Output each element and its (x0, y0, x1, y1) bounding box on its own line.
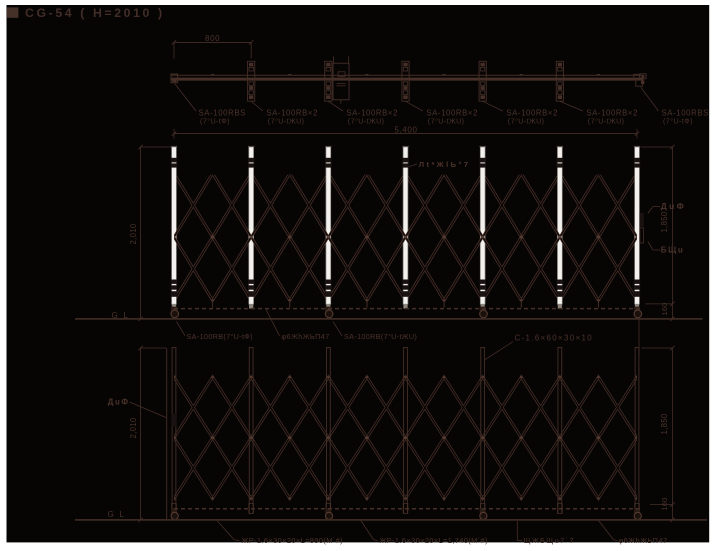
svg-text:160: 160 (660, 303, 669, 316)
svg-text:2,010: 2,010 (129, 223, 138, 244)
svg-text:CG-54 ( H=2010 ): CG-54 ( H=2010 ) (25, 6, 165, 20)
svg-text:(7°U-tЖU): (7°U-tЖU) (588, 116, 625, 125)
svg-text:G L: G L (112, 311, 130, 320)
svg-text:ЖP-1.6×30×20×L=1,740(М´#): ЖP-1.6×30×20×L=1,740(М´#) (380, 536, 488, 545)
svg-text:(7°U-tЖU): (7°U-tЖU) (428, 116, 465, 125)
svg-text:φ6ЖhЖЬП47: φ6ЖhЖЬП47 (619, 536, 668, 545)
svg-text:800: 800 (205, 34, 220, 43)
svg-text:160: 160 (660, 498, 669, 511)
svg-text:(7°U-tЖU): (7°U-tЖU) (268, 116, 305, 125)
svg-text:ЩЖБЩu7´7: ЩЖБЩu7´7 (524, 536, 576, 545)
svg-text:2,010: 2,010 (129, 417, 138, 438)
svg-text:Лt*ЖlЬ°7: Лt*ЖlЬ°7 (419, 160, 471, 169)
svg-text:G L: G L (108, 510, 126, 519)
svg-text:(7°U-tЖU): (7°U-tЖU) (508, 116, 545, 125)
svg-text:SA-100RB(7°U-tЖU): SA-100RB(7°U-tЖU) (344, 332, 417, 341)
svg-text:SA-100RB(7°U-tФ): SA-100RB(7°U-tФ) (187, 332, 253, 341)
svg-text:ДuФ: ДuФ (661, 201, 686, 211)
svg-text:(7°U-tФ): (7°U-tФ) (200, 116, 230, 125)
svg-text:(7°U-tФ): (7°U-tФ) (663, 116, 693, 125)
svg-text:1,850: 1,850 (660, 211, 669, 232)
svg-text:1,850: 1,850 (660, 413, 669, 434)
svg-text:φ6ЖhЖЬП47: φ6ЖhЖЬП47 (282, 332, 330, 341)
svg-text:C-1.6×60×30×10: C-1.6×60×30×10 (515, 334, 593, 343)
svg-text:5,400: 5,400 (394, 125, 417, 134)
svg-text:(7°U-tЖU): (7°U-tЖU) (348, 116, 385, 125)
svg-text:ДuФ: ДuФ (108, 398, 130, 407)
svg-text:ЖP-1.6×30×20×L=890(М´#): ЖP-1.6×30×20×L=890(М´#) (242, 536, 344, 545)
